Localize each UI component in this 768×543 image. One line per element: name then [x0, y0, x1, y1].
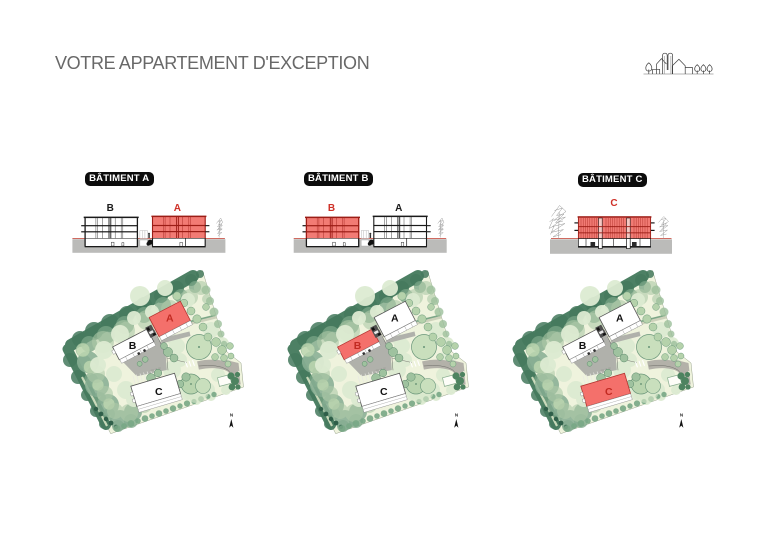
- svg-text:C: C: [610, 198, 617, 209]
